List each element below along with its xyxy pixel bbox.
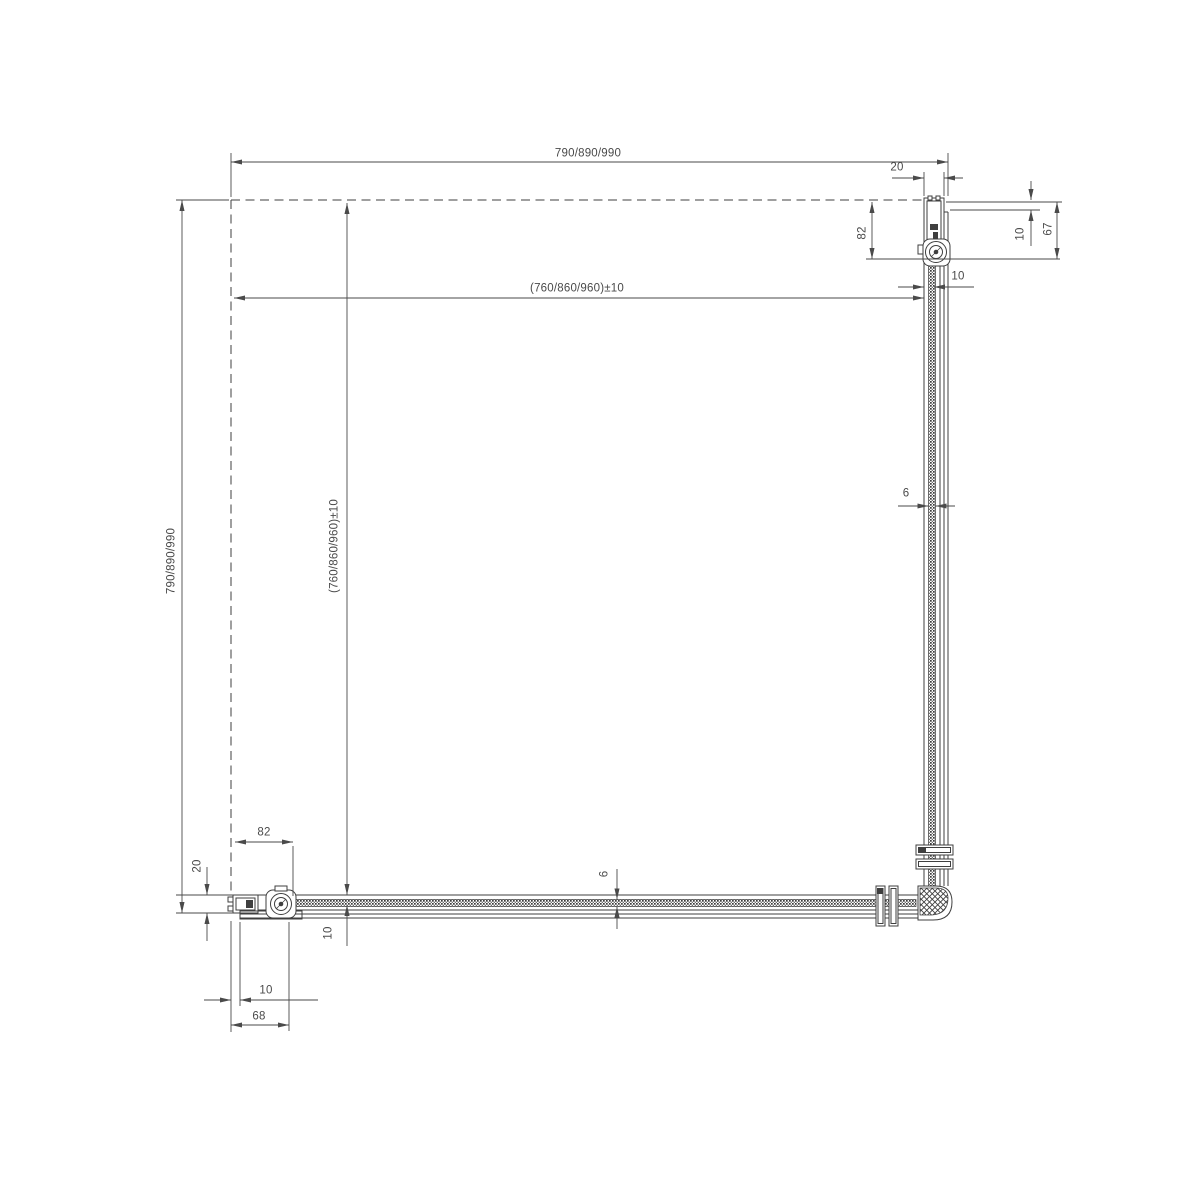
dim-top-profile-width-20: [892, 172, 963, 196]
dim-left-outer-height: [176, 200, 233, 913]
top-right-wall-profile-assembly: [918, 196, 950, 266]
dim-label-bottom-glass-gap: 10: [323, 926, 335, 939]
dim-label-top-glass-gap: 10: [951, 271, 964, 283]
dim-label-bottom-wall-gap: 10: [259, 985, 272, 997]
dim-label-bottom-profile-depth: 68: [252, 1011, 265, 1023]
bottom-glass-panel: [240, 895, 918, 918]
dim-label-top-outer-width: 790/890/990: [555, 148, 621, 160]
plan-drawing: [0, 0, 1200, 1200]
dim-label-glass-thickness-bottom: 6: [599, 871, 611, 878]
dim-label-left-inner-height: (760/860/960)±10: [329, 499, 341, 593]
dim-label-left-outer-height: 790/890/990: [166, 528, 178, 594]
dim-label-top-profile-width: 20: [890, 162, 903, 174]
corner-connector-elbow: [918, 886, 952, 920]
dim-label-top-corner-depth: 67: [1043, 222, 1055, 235]
dim-label-top-inner-width: (760/860/960)±10: [530, 283, 624, 295]
right-glass-panel: [924, 212, 948, 886]
dim-label-bottom-wall-to-roller: 82: [257, 827, 270, 839]
product-technical-diagram: 790/890/990 (760/860/960)±10 790/890/990…: [0, 0, 1200, 1200]
dim-label-top-wall-to-roller: 82: [857, 226, 869, 239]
dim-label-bottom-profile-width: 20: [192, 859, 204, 872]
dim-label-glass-thickness-right: 6: [903, 488, 910, 500]
dim-label-top-wall-gap: 10: [1015, 227, 1027, 240]
